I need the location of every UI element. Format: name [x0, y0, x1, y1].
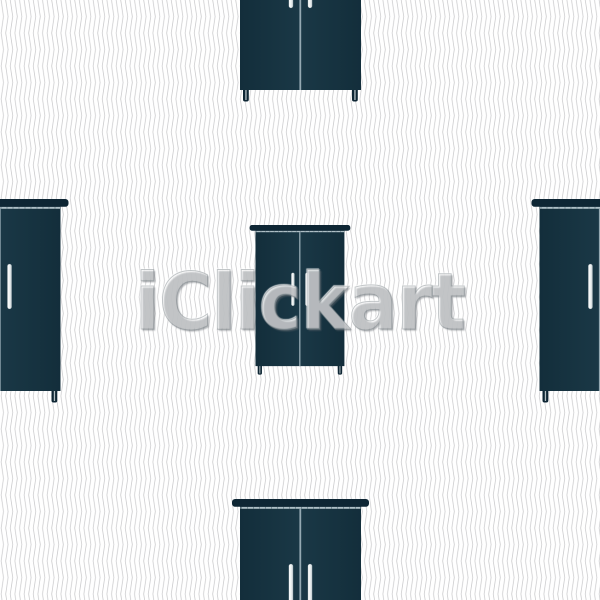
pattern-canvas: iClickart	[0, 0, 600, 600]
cupboard-icon-center	[250, 225, 351, 375]
cupboard-icon-top	[232, 0, 369, 102]
cupboard-icon-right	[532, 199, 600, 403]
cupboard-icon-left	[0, 199, 69, 403]
cupboard-icon-bottom	[232, 499, 369, 600]
zigzag-background	[0, 0, 600, 600]
